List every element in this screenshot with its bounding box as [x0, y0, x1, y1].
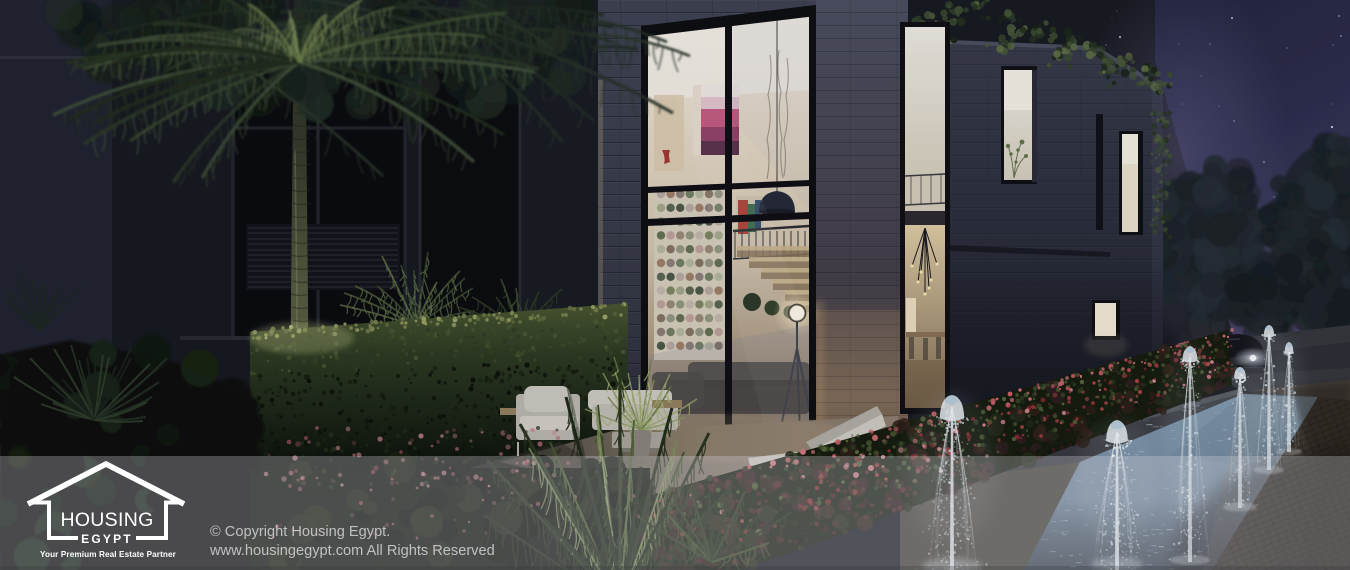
svg-text:www.housingegypt.com All Right: www.housingegypt.com All Rights Reserved [209, 543, 495, 559]
svg-text:HOUSING: HOUSING [60, 509, 153, 531]
svg-text:© Copyright Housing Egypt.: © Copyright Housing Egypt. [210, 524, 390, 540]
svg-text:Your Premium Real Estate Partn: Your Premium Real Estate Partner [40, 550, 177, 559]
svg-text:EGYPT: EGYPT [81, 532, 133, 546]
